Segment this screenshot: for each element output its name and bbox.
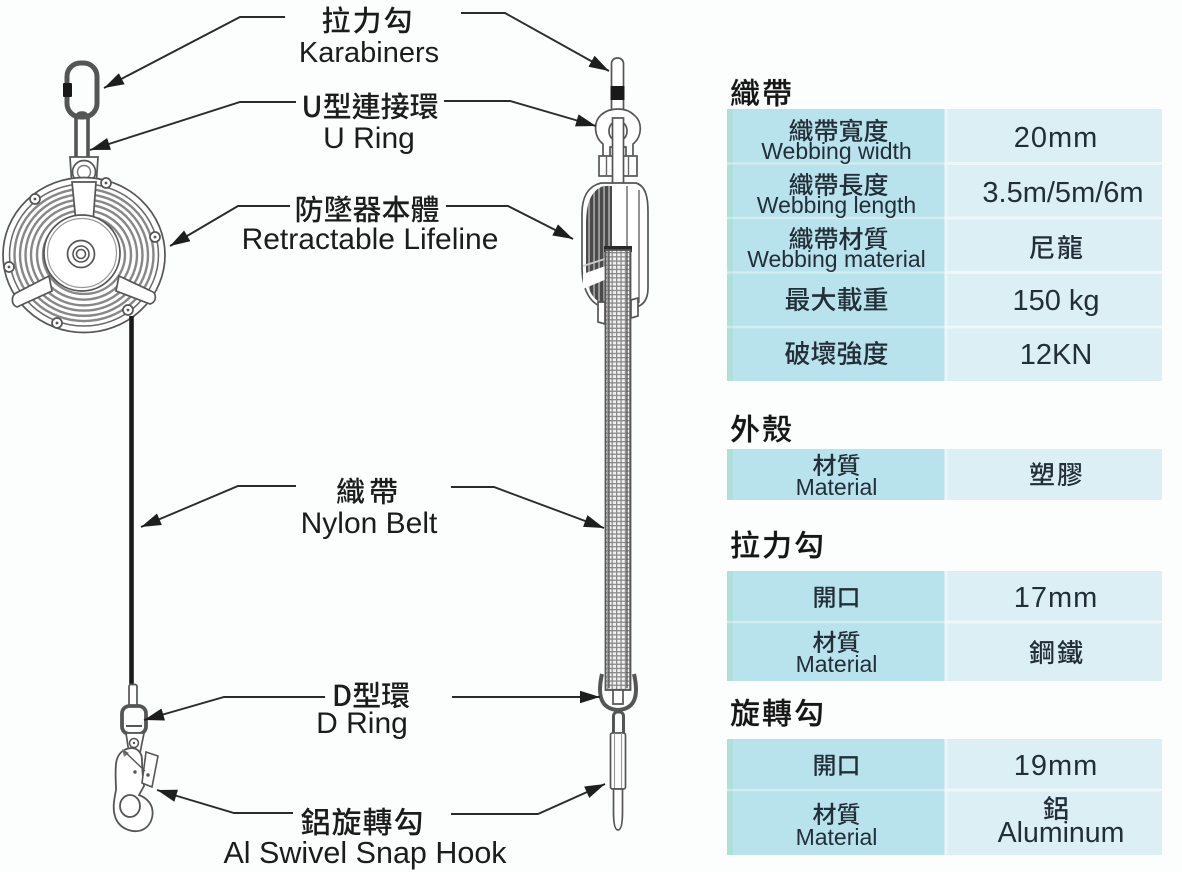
- svg-text:150 kg: 150 kg: [1012, 285, 1099, 317]
- svg-text:Aluminum: Aluminum: [998, 817, 1125, 849]
- svg-text:19mm: 19mm: [1014, 750, 1099, 782]
- svg-text:Material: Material: [796, 474, 878, 500]
- svg-text:Nylon Belt: Nylon Belt: [301, 507, 438, 540]
- svg-text:20mm: 20mm: [1014, 122, 1099, 154]
- svg-text:Karabiners: Karabiners: [299, 37, 439, 69]
- svg-text:Material: Material: [796, 824, 878, 850]
- svg-text:12KN: 12KN: [1020, 339, 1093, 371]
- svg-text:3.5m/5m/6m: 3.5m/5m/6m: [982, 177, 1143, 209]
- svg-text:Webbing width: Webbing width: [761, 138, 911, 164]
- svg-text:17mm: 17mm: [1014, 582, 1099, 614]
- svg-text:Webbing length: Webbing length: [757, 192, 916, 218]
- svg-text:Material: Material: [796, 651, 878, 677]
- svg-text:Webbing material: Webbing material: [747, 246, 926, 272]
- svg-text:U Ring: U Ring: [323, 122, 415, 155]
- svg-text:Retractable Lifeline: Retractable Lifeline: [242, 223, 499, 256]
- svg-text:D Ring: D Ring: [316, 707, 408, 740]
- svg-text:Al Swivel Snap Hook: Al Swivel Snap Hook: [223, 836, 507, 870]
